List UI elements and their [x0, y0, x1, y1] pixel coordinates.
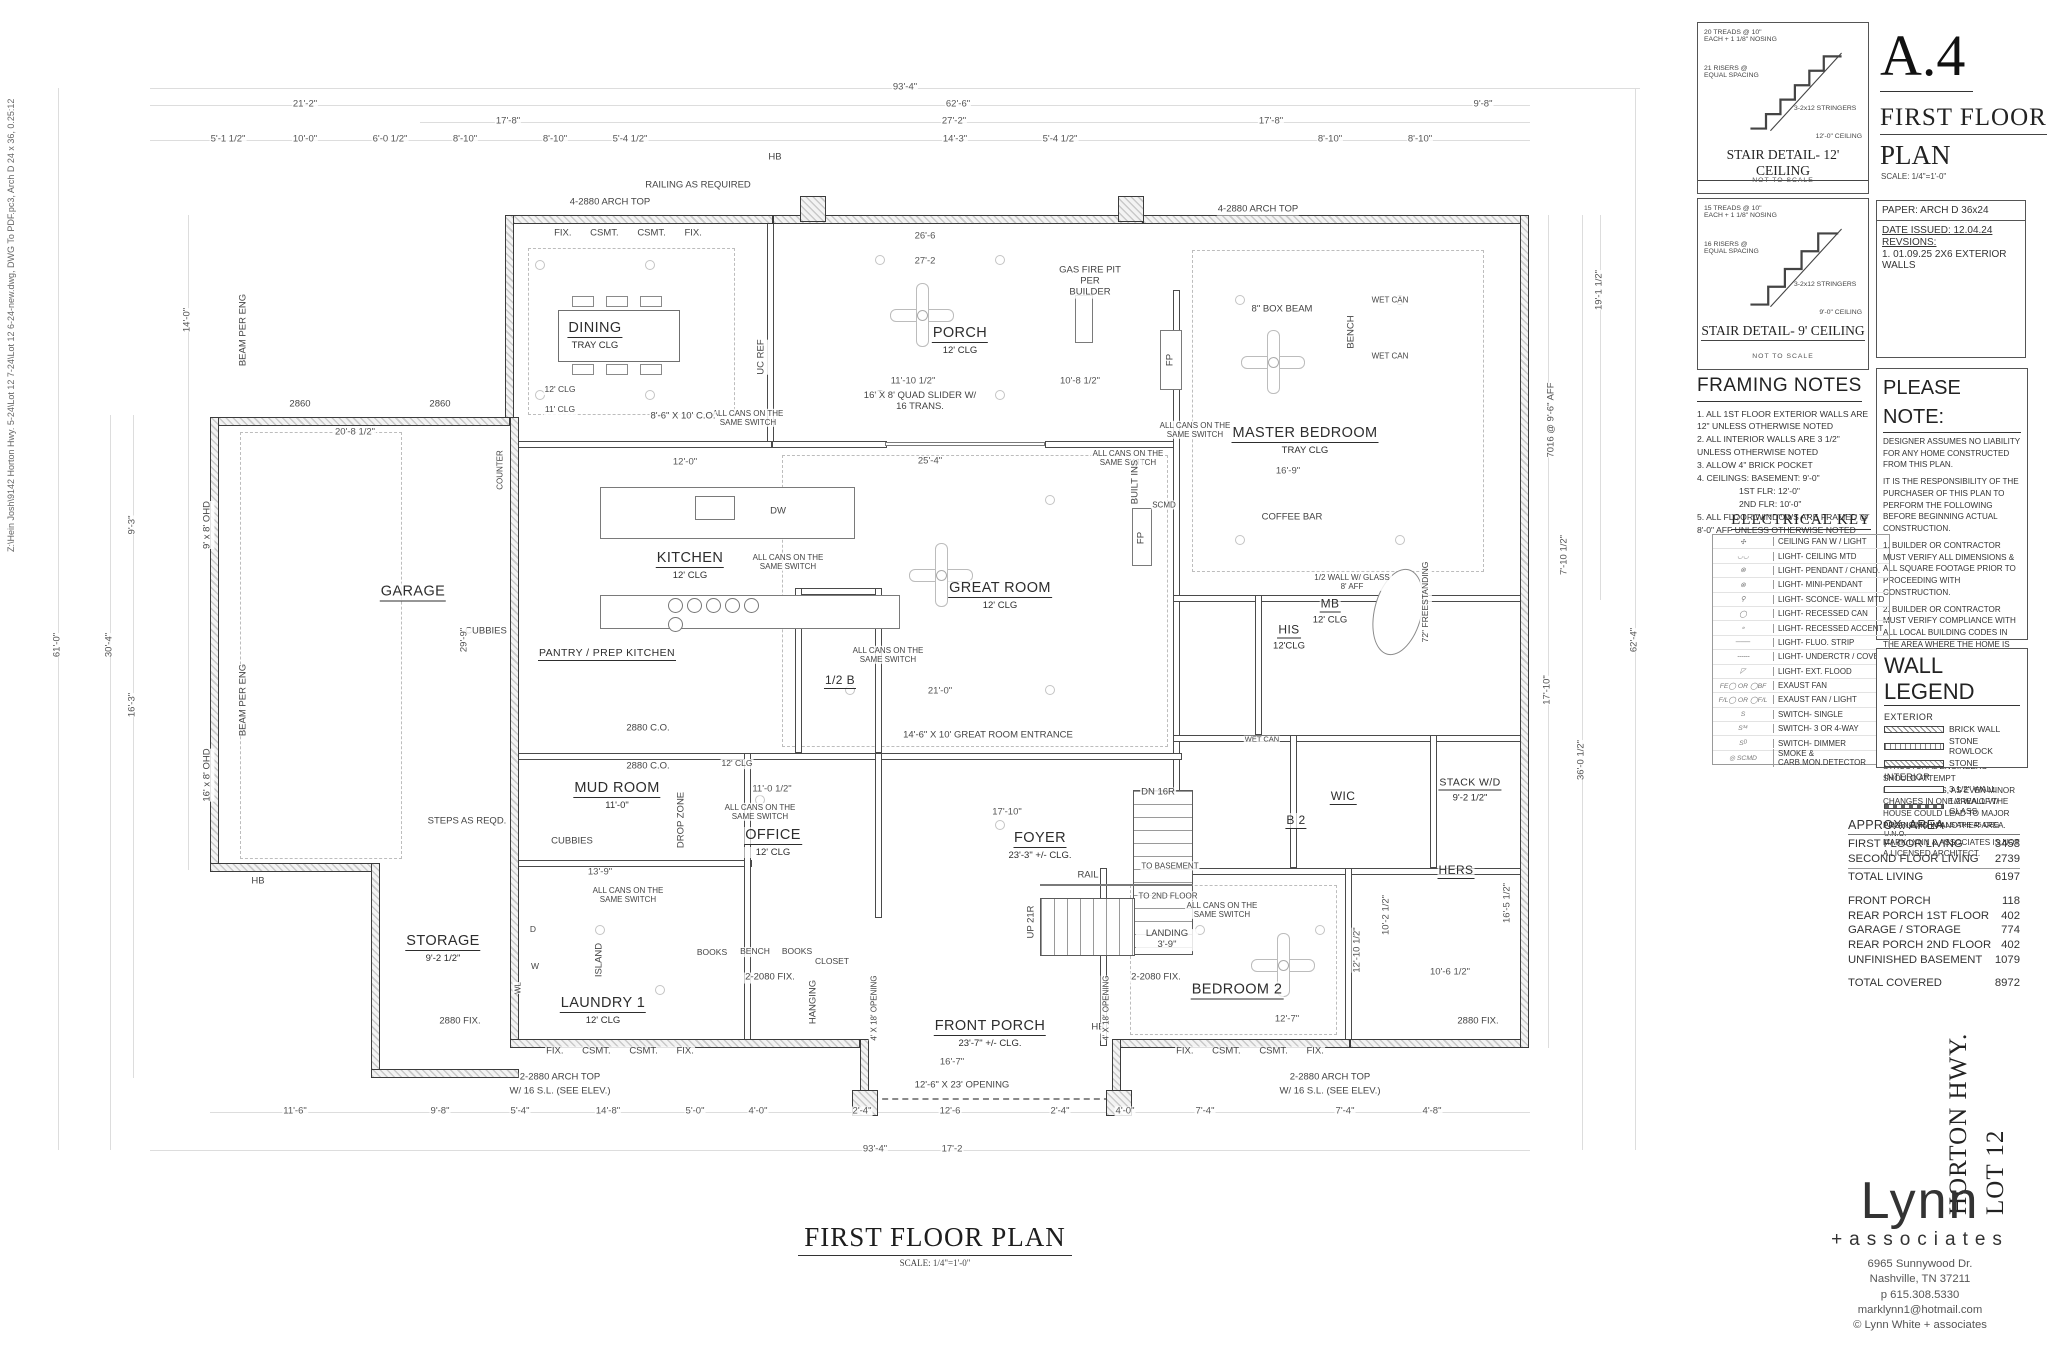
hose-bib-label: HB [250, 877, 265, 888]
recessed-can-icon [645, 390, 655, 400]
electrical-symbol: ∘ [1713, 624, 1773, 632]
please-note-paragraph: DESIGNER ASSUMES NO LIABILITY FOR ANY HO… [1883, 436, 2021, 471]
plan-annotation: ALL CANS ON THE SAME SWITCH [751, 553, 825, 571]
dimension-label: 16'-5 1/2" [1502, 883, 1515, 923]
electrical-symbol: S [1713, 711, 1773, 718]
electrical-key-row: F/L◯ OR ◯F/LEXAUST FAN / LIGHT [1713, 692, 1889, 706]
dimension-label: 4'-0" [1115, 1107, 1136, 1118]
plan-annotation: 1/2 WALL W/ GLASS 8' AFF [1312, 573, 1392, 591]
interior-wall [510, 753, 1182, 760]
dimension-label: 8'-10" [542, 135, 568, 146]
appliance-label: D [529, 925, 537, 935]
dimension-label: 5'-0" [685, 1107, 706, 1118]
plan-annotation: DROP ZONE [676, 792, 689, 848]
plan-annotation: ALL CANS ON THE SAME SWITCH [1158, 421, 1232, 439]
dimension-label: 8'-10" [452, 135, 478, 146]
dimension-label: 5'-4 1/2" [1042, 135, 1079, 146]
plan-annotation: BOOKS [696, 948, 728, 958]
area-row: FIRST FLOOR LIVING3458 [1848, 837, 2020, 852]
dimension-label: 8'-10" [1407, 135, 1433, 146]
exterior-wall [1520, 215, 1529, 1048]
dimension-label: 20'-8 1/2" [334, 428, 376, 439]
dimension-label: 21'-0" [927, 687, 953, 698]
plan-annotation: BEAM PER ENG [238, 294, 251, 366]
dining-chair [572, 364, 594, 375]
recessed-can-icon [655, 985, 665, 995]
interior-wall [875, 753, 882, 918]
plan-annotation: ISLAND [594, 943, 607, 977]
dim-line [150, 1150, 1530, 1151]
stair-label: RAIL [1076, 871, 1099, 882]
electrical-symbol: ◸ [1713, 667, 1773, 675]
framing-note: 1ST FLR: 12'-0" [1739, 485, 1873, 498]
plan-annotation: ALL CANS ON THE SAME SWITCH [711, 409, 785, 427]
window-label: 2880 FIX. [1456, 1017, 1499, 1028]
dimension-label: 11'-0 1/2" [751, 785, 792, 796]
recessed-can-icon [995, 820, 1005, 830]
window-label: 2-2080 FIX. [1130, 973, 1182, 984]
recessed-can-icon [995, 390, 1005, 400]
plan-annotation: ALL CANS ON THE SAME SWITCH [723, 803, 797, 821]
recessed-can-icon [1315, 925, 1325, 935]
sheet-title-line1: FIRST FLOOR [1880, 104, 2047, 135]
stair-run-lower [1040, 898, 1135, 956]
stone-rowlock-swatch [1884, 743, 1944, 750]
room-label-porch: PORCH12' CLG [932, 324, 988, 356]
wall-legend-row: 1/2 WALL W/ GLASS [1884, 796, 2020, 816]
appliance-label: WL [512, 982, 523, 994]
plan-annotation: 4-2880 ARCH TOP [1217, 205, 1299, 216]
recessed-can-icon [595, 925, 605, 935]
area-row: UNFINISHED BASEMENT1079 [1848, 953, 2020, 968]
area-table-title: APPROX. AREA [1848, 818, 2020, 835]
interior-wall [795, 588, 882, 595]
exterior-wall [371, 1069, 519, 1078]
dimension-label: 17'-8" [1258, 117, 1284, 128]
dimension-label: 5'-4" [510, 1107, 531, 1118]
plan-annotation: BENCH [1346, 315, 1359, 348]
wall-legend-row: STONE [1884, 758, 2020, 768]
dimension-label: 93'-4" [862, 1145, 888, 1156]
wall-legend-row: BRICK WALL [1884, 724, 2020, 734]
dimension-label: 30'-4" [104, 633, 117, 657]
floor-plan-sheet: { "sheet": { "file_path_note": "Z:\\Hein… [0, 0, 2048, 1365]
dim-line [420, 122, 1530, 123]
dimension-label: 27'-2 [914, 257, 937, 268]
window-size-label: 2860 [428, 400, 451, 411]
dimension-label: 4'-8" [1422, 1107, 1443, 1118]
electrical-key-row: ◡◡LIGHT- CEILING MTD [1713, 548, 1889, 562]
dining-chair [606, 364, 628, 375]
electrical-symbol: ✣ [1713, 538, 1773, 546]
please-note-title: PLEASE NOTE: [1883, 374, 2021, 433]
stair-detail-title: STAIR DETAIL- 9' CEILING [1701, 323, 1864, 341]
room-label-wic: WIC [1330, 787, 1357, 805]
exterior-wall [1143, 215, 1529, 224]
room-label-mb: MB12' CLG [1313, 595, 1348, 626]
dimension-label: 16'-3" [127, 693, 140, 717]
window-label: 2880 FIX. [438, 1017, 481, 1028]
recessed-can-icon [1235, 295, 1245, 305]
wall-legend-title: WALL LEGEND [1884, 653, 2020, 706]
appliance-label: DW [769, 507, 787, 518]
dimension-label: 17'-8" [495, 117, 521, 128]
porch-opening-dashed [862, 1098, 1120, 1100]
dimension-label: 16'-7" [939, 1058, 965, 1069]
plan-annotation: HANGING [808, 980, 821, 1024]
electrical-symbol: ⊗ [1713, 566, 1773, 574]
brand-name: Lynn [1795, 1175, 2045, 1227]
appliance-label: W [530, 962, 540, 972]
plan-scale: SCALE: 1/4"=1'-0" [780, 1258, 1090, 1268]
framing-note: 4. CEILINGS: BASEMENT: 9'-0" [1697, 472, 1873, 485]
electrical-key-row: ✣CEILING FAN W / LIGHT [1713, 535, 1889, 548]
dim-line [133, 415, 134, 1078]
dimension-label: 7'-10 1/2" [1559, 535, 1572, 575]
electrical-key-row: ⊗LIGHT- PENDANT / CHAND. [1713, 563, 1889, 577]
dimension-label: 12'-10 1/2" [1352, 927, 1365, 972]
dimension-label: 13'-9" [587, 868, 613, 879]
dimension-label: 5'-1 1/2" [210, 135, 247, 146]
dimension-label: 8'-10" [1317, 135, 1343, 146]
recessed-can-icon [1045, 495, 1055, 505]
door-label: W/ 16 S.L. (SEE ELEV.) [508, 1087, 611, 1098]
opening-label: 14'-6" X 10' GREAT ROOM ENTRANCE [902, 731, 1074, 742]
please-note-paragraph: 1. BUILDER OR CONTRACTOR MUST VERIFY ALL… [1883, 540, 2021, 599]
dim-line [110, 415, 111, 1150]
stair-ceiling-note: 12'-0" CEILING [1816, 133, 1862, 140]
area-row: TOTAL COVERED8972 [1848, 976, 2020, 991]
interior-wall [1290, 735, 1297, 868]
dimension-label: 5'-4 1/2" [612, 135, 649, 146]
file-path-note: Z:\Hein Josh\9142 Horton Hwy. 5-24\Lot 1… [6, 12, 17, 552]
dimension-label: 12'-0" [672, 458, 698, 469]
electrical-symbol: F/L◯ OR ◯F/L [1713, 696, 1773, 704]
interior-wall [510, 860, 752, 867]
framing-note: 2. ALL INTERIOR WALLS ARE 3 1/2" UNLESS … [1697, 433, 1873, 459]
date-issued: DATE ISSUED: 12.04.24 [1877, 221, 2025, 236]
dimension-label: 93'-4" [892, 83, 918, 94]
electrical-symbol: ⊗ [1713, 581, 1773, 589]
brand-address-line1: 6965 Sunnywood Dr. [1795, 1257, 2045, 1272]
electrical-key-row: ◸LIGHT- EXT. FLOOD [1713, 664, 1889, 678]
dimension-label: 17'-2 [941, 1145, 964, 1156]
dimension-label: 17'-10" [991, 808, 1022, 819]
stair-stringer-note: 3-2x12 STRINGERS [1794, 281, 1858, 288]
dimension-label: 12'-7" [1274, 1015, 1300, 1026]
interior-wall [510, 441, 772, 448]
interior-wall-swatch [1884, 786, 1944, 793]
room-label-front-porch: FRONT PORCH23'-7" +/- CLG. [934, 1017, 1046, 1049]
electrical-key-row: S³⁴SWITCH- 3 OR 4-WAY [1713, 721, 1889, 735]
exterior-wall [505, 215, 514, 425]
porch-column [800, 196, 826, 222]
area-row: SECOND FLOOR LIVING2739 [1848, 852, 2020, 867]
porch-column [1118, 196, 1144, 222]
exterior-wall [505, 215, 773, 224]
dimension-label: 10'-0" [292, 135, 318, 146]
electrical-key-row: ◎ SCMDSMOKE & CARB.MON.DETECTOR [1713, 750, 1889, 764]
plan-annotation: STEPS AS REQD. [427, 817, 508, 828]
dimension-label: 14'-0" [182, 308, 195, 332]
revisions-label: REVSIONS: [1877, 236, 2025, 248]
electrical-symbol: ◡◡ [1713, 552, 1773, 560]
plan-annotation: ALL CANS ON THE SAME SWITCH [1185, 901, 1259, 919]
dim-line [58, 88, 59, 1150]
exterior-wall [210, 417, 510, 426]
framing-note: 1. ALL 1ST FLOOR EXTERIOR WALLS ARE 12" … [1697, 408, 1873, 434]
interior-wall [1173, 735, 1527, 742]
dim-line [1582, 215, 1583, 1150]
fireplace-label: FP [1165, 354, 1178, 366]
interior-wall [744, 753, 751, 1046]
plan-annotation: WET CAN [1371, 295, 1410, 304]
room-label-mud-room: MUD ROOM11'-0" [573, 779, 660, 811]
window-labels: FIX. CSMT. CSMT. FIX. [545, 1047, 695, 1058]
dining-chair [640, 296, 662, 307]
quad-slider-door [885, 442, 1045, 446]
dimension-label: 62'-4" [1629, 628, 1642, 652]
designer-brand-block: Lynn +associates 6965 Sunnywood Dr. Nash… [1795, 1175, 2045, 1333]
please-note-paragraph: IT IS THE RESPONSIBILITY OF THE PURCHASE… [1883, 476, 2021, 535]
room-label-dining: DININGTRAY CLG [567, 319, 622, 351]
opening-label: 2880 C.O. [625, 762, 670, 773]
plan-annotation: COFFEE BAR [1261, 513, 1324, 524]
dimension-label: 17'-10" [1542, 675, 1555, 704]
plan-annotation: ALL CANS ON THE SAME SWITCH [591, 886, 665, 904]
ceiling-label: 11' CLG [544, 405, 576, 415]
dimension-label: 36'-0 1/2" [1576, 740, 1589, 780]
framing-note: 2ND FLR: 10'-0" [1739, 498, 1873, 511]
dimension-label: 29'-9" [459, 628, 472, 652]
dimension-label: 19'-1 1/2" [1594, 270, 1607, 310]
dimension-label: 16'-9" [1275, 467, 1301, 478]
dimension-label: 12'-6 [939, 1107, 962, 1118]
please-note-box: PLEASE NOTE: DESIGNER ASSUMES NO LIABILI… [1876, 368, 2028, 640]
room-label-master-bedroom: MASTER BEDROOMTRAY CLG [1232, 424, 1379, 456]
fireplace-label: FP [1136, 532, 1149, 544]
plan-annotation: ALL CANS ON THE SAME SWITCH [851, 646, 925, 664]
dimension-label: 62'-6" [945, 100, 971, 111]
plan-annotation: WET CAN [1244, 736, 1280, 745]
ceiling-label: 12' CLG [721, 759, 754, 769]
stair-detail-title: STAIR DETAIL- 12' CEILING [1698, 147, 1868, 181]
dimension-label: 2'-4" [1050, 1107, 1071, 1118]
recessed-can-icon [645, 260, 655, 270]
window-size-label: 2860 [288, 400, 311, 411]
recessed-can-icon [995, 255, 1005, 265]
dimension-label: 11'-6" [282, 1107, 308, 1118]
dimension-label: 7'-4" [1335, 1107, 1356, 1118]
dining-chair [640, 364, 662, 375]
dimension-label: 9'-3" [127, 516, 140, 535]
door-label: W/ 16 S.L. (SEE ELEV.) [1278, 1087, 1381, 1098]
garage-door-outline [240, 432, 402, 859]
room-label-hers: HERS [1438, 861, 1475, 879]
plan-annotation: ALL CANS ON THE SAME SWITCH [1091, 449, 1165, 467]
recessed-can-icon [1235, 535, 1245, 545]
hose-bib-label: HB [767, 153, 782, 164]
room-label-storage: STORAGE9'-2 1/2" [405, 932, 480, 964]
electrical-symbol: ╌╌╌ [1713, 653, 1773, 661]
dim-line [150, 105, 1530, 106]
brand-copyright: © Lynn White + associates [1795, 1318, 2045, 1333]
stair-stringer-note: 3-2x12 STRINGERS [1794, 105, 1858, 112]
dimension-label: 2'-4" [852, 1107, 873, 1118]
exterior-wall [210, 417, 219, 872]
plan-annotation: BENCH [739, 947, 771, 957]
electrical-key-row: ╌╌╌LIGHT- UNDERCTR / COVE [1713, 649, 1889, 663]
area-row: REAR PORCH 1ST FLOOR402 [1848, 909, 2020, 924]
stair-label: UP 21R [1026, 905, 1039, 938]
stone-swatch [1884, 760, 1944, 767]
electrical-symbol: ◎ SCMD [1713, 754, 1773, 762]
plan-annotation: GAS FIRE PIT PER BUILDER [1058, 266, 1122, 299]
dimension-label: 25'-4" [917, 457, 943, 468]
plan-title: FIRST FLOOR PLAN [798, 1222, 1072, 1256]
stair-label: LANDING 3'-9" [1136, 929, 1198, 951]
wall-legend-row: STONE ROWLOCK [1884, 736, 2020, 756]
stair-profile-drawing [1746, 33, 1846, 133]
dimension-label: 21'-2" [292, 100, 318, 111]
area-row: REAR PORCH 2ND FLOOR402 [1848, 938, 2020, 953]
brand-phone: p 615.308.5330 [1795, 1288, 2045, 1303]
stair-label: DN 16R [1140, 788, 1176, 799]
dimension-label: 9'-8" [430, 1107, 451, 1118]
stair-detail-12: 20 TREADS @ 10" EACH + 1 1/8" NOSING 21 … [1697, 22, 1869, 194]
electrical-symbol: ⚲ [1713, 595, 1773, 603]
plan-annotation: 8" BOX BEAM [1251, 305, 1314, 316]
electrical-symbol: Sᴰ [1713, 740, 1773, 747]
door-label: 2-2880 ARCH TOP [519, 1073, 601, 1084]
room-label-b2: B 2 [1285, 811, 1306, 829]
ceiling-label: 12' CLG [544, 385, 577, 395]
electrical-key-row: ───LIGHT- FLUO. STRIP [1713, 635, 1889, 649]
dimension-label: 14'-3" [942, 135, 968, 146]
area-row: TOTAL LIVING6197 [1848, 868, 2020, 885]
electrical-symbol: ─── [1713, 639, 1773, 646]
room-label-great-room: GREAT ROOM12' CLG [948, 579, 1052, 611]
exterior-wall [371, 863, 380, 1078]
electrical-key-row: ◯LIGHT- RECESSED CAN [1713, 606, 1889, 620]
cooktop-burners [668, 598, 768, 632]
room-label-half-bath: 1/2 B [824, 671, 856, 689]
window-label: 2-2080 FIX. [744, 973, 796, 984]
room-label-kitchen: KITCHEN12' CLG [656, 549, 724, 581]
electrical-key-row: FE◯ OR ◯BFEXAUST FAN [1713, 678, 1889, 692]
brand-subname: +associates [1795, 1229, 2045, 1251]
sheet-title-scale: SCALE: 1/4"=1'-0" [1881, 172, 1946, 181]
recessed-can-icon [1395, 535, 1405, 545]
room-label-bedroom-2: BEDROOM 2 [1191, 981, 1284, 1000]
opening-label: 2880 C.O. [625, 724, 670, 735]
area-row: FRONT PORCH118 [1848, 894, 2020, 909]
room-label-laundry: LAUNDRY 112' CLG [560, 994, 646, 1026]
exterior-wall [210, 863, 380, 872]
stair-profile-drawing [1746, 209, 1846, 309]
plan-annotation: BEAM PER ENG [238, 664, 251, 736]
dimension-label: 6'-0 1/2" [372, 135, 409, 146]
sheet-title-line2: PLAN [1880, 140, 1951, 171]
electrical-symbol: ◯ [1713, 610, 1773, 618]
garage-door-label: 16' x 8' OHD [202, 748, 215, 801]
smoke-detector-label: SCMD [1151, 500, 1177, 509]
opening-label: 4' X 18' OPENING [1100, 975, 1111, 1040]
electrical-key-row: ⚲LIGHT- SCONCE- WALL MTD [1713, 592, 1889, 606]
stair-label: TO BASEMENT [1140, 861, 1199, 870]
dimension-label: 27'-2" [941, 117, 967, 128]
dimension-label: 10'-2 1/2" [1381, 895, 1394, 935]
dimension-label: 9'-8" [1473, 100, 1494, 111]
brand-address-line2: Nashville, TN 37211 [1795, 1272, 2045, 1287]
counter-label: COUNTER [494, 450, 505, 490]
glass-wall-swatch [1884, 804, 1944, 809]
recessed-can-icon [535, 260, 545, 270]
wall-legend: WALL LEGEND EXTERIOR BRICK WALL STONE RO… [1876, 648, 2028, 768]
paper-size: PAPER: ARCH D 36x24 [1877, 201, 2025, 221]
dining-chair [572, 296, 594, 307]
dimension-label: 7'-4" [1195, 1107, 1216, 1118]
electrical-symbol: S³⁴ [1713, 725, 1773, 732]
plan-annotation: BOOKS [781, 947, 813, 957]
plan-annotation: RAILING AS REQUIRED [644, 181, 752, 192]
window-labels: FIX. CSMT. CSMT. FIX. [1175, 1047, 1325, 1058]
plan-annotation: BUILT INS [1130, 460, 1143, 505]
exterior-wall [1350, 1039, 1529, 1048]
room-label-garage: GARAGE [380, 583, 446, 602]
room-label-his: HIS12'CLG [1273, 621, 1305, 652]
not-to-scale-note: NOT TO SCALE [1698, 177, 1868, 184]
recessed-can-icon [1045, 685, 1055, 695]
wall-legend-row: 3 1/2" WALL [1884, 784, 2020, 794]
plan-annotation: WET CAN [1371, 351, 1410, 360]
opening-label: 4' X 18' OPENING [868, 975, 879, 1040]
dining-chair [606, 296, 628, 307]
kitchen-sink [695, 496, 735, 520]
plan-annotation: CUBBIES [550, 837, 594, 848]
opening-label: 8'-6" X 10' C.O. [649, 412, 716, 423]
stair-detail-9: 15 TREADS @ 10" EACH + 1 1/8" NOSING 16 … [1697, 198, 1869, 370]
tub-label: 72" FREESTANDING [1420, 562, 1432, 643]
area-row: GARAGE / STORAGE774 [1848, 923, 2020, 938]
stair-ceiling-note: 9'-0" CEILING [1819, 309, 1862, 316]
wall-legend-exterior-label: EXTERIOR [1884, 712, 2020, 722]
room-label-foyer: FOYER23'-3" +/- CLG. [1008, 829, 1071, 861]
interior-wall [1430, 735, 1437, 868]
issue-info-box: PAPER: ARCH D 36x24 DATE ISSUED: 12.04.2… [1876, 200, 2026, 358]
sheet-number: A.4 [1880, 22, 1973, 92]
dimension-label: 4'-0" [748, 1107, 769, 1118]
exterior-wall [773, 215, 1143, 224]
wall-legend-interior-label: INTERIOR [1884, 772, 2020, 782]
stair-label: TO 2ND FLOOR [1138, 891, 1199, 900]
dimension-label: 10'-6 1/2" [1429, 968, 1471, 979]
interior-wall [1173, 595, 1527, 602]
framing-note: 3. ALLOW 4" BRICK POCKET [1697, 459, 1873, 472]
not-to-scale-note: NOT TO SCALE [1698, 353, 1868, 360]
plan-title-block: FIRST FLOOR PLAN SCALE: 1/4"=1'-0" [780, 1222, 1090, 1268]
plan-annotation: CLOSET [814, 957, 850, 967]
electrical-key-row: ∘LIGHT- RECESSED ACCENT [1713, 620, 1889, 634]
plan-annotation: 4-2880 ARCH TOP [569, 198, 651, 209]
stair-rail [1040, 884, 1193, 886]
room-label-stack-wd: STACK W/D9'-2 1/2" [1438, 773, 1501, 804]
electrical-key-row: ⊗LIGHT- MINI-PENDANT [1713, 577, 1889, 591]
revision-entry: 1. 01.09.25 2X6 EXTERIOR WALLS [1877, 248, 2025, 271]
interior-wall [772, 441, 887, 448]
brick-wall-swatch [1884, 726, 1944, 733]
opening-label: 12'-6" X 23' OPENING [914, 1081, 1011, 1092]
